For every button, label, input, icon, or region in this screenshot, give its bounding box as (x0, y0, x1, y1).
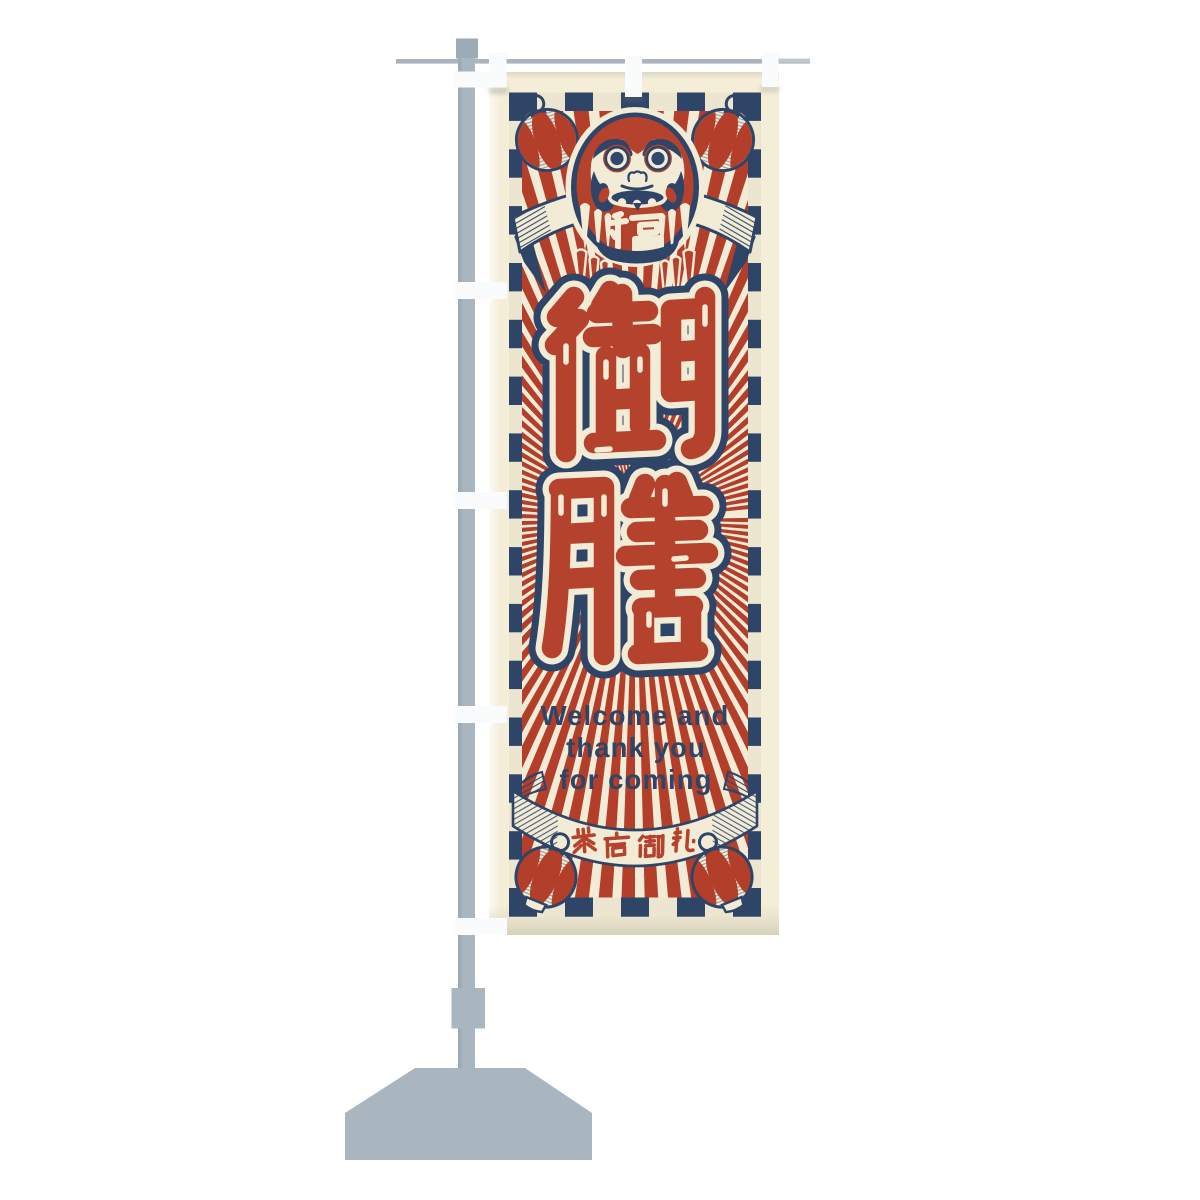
svg-text:Welcome and: Welcome and (541, 700, 730, 731)
svg-text:for coming: for coming (559, 764, 712, 795)
svg-text:thank you: thank you (566, 732, 706, 763)
